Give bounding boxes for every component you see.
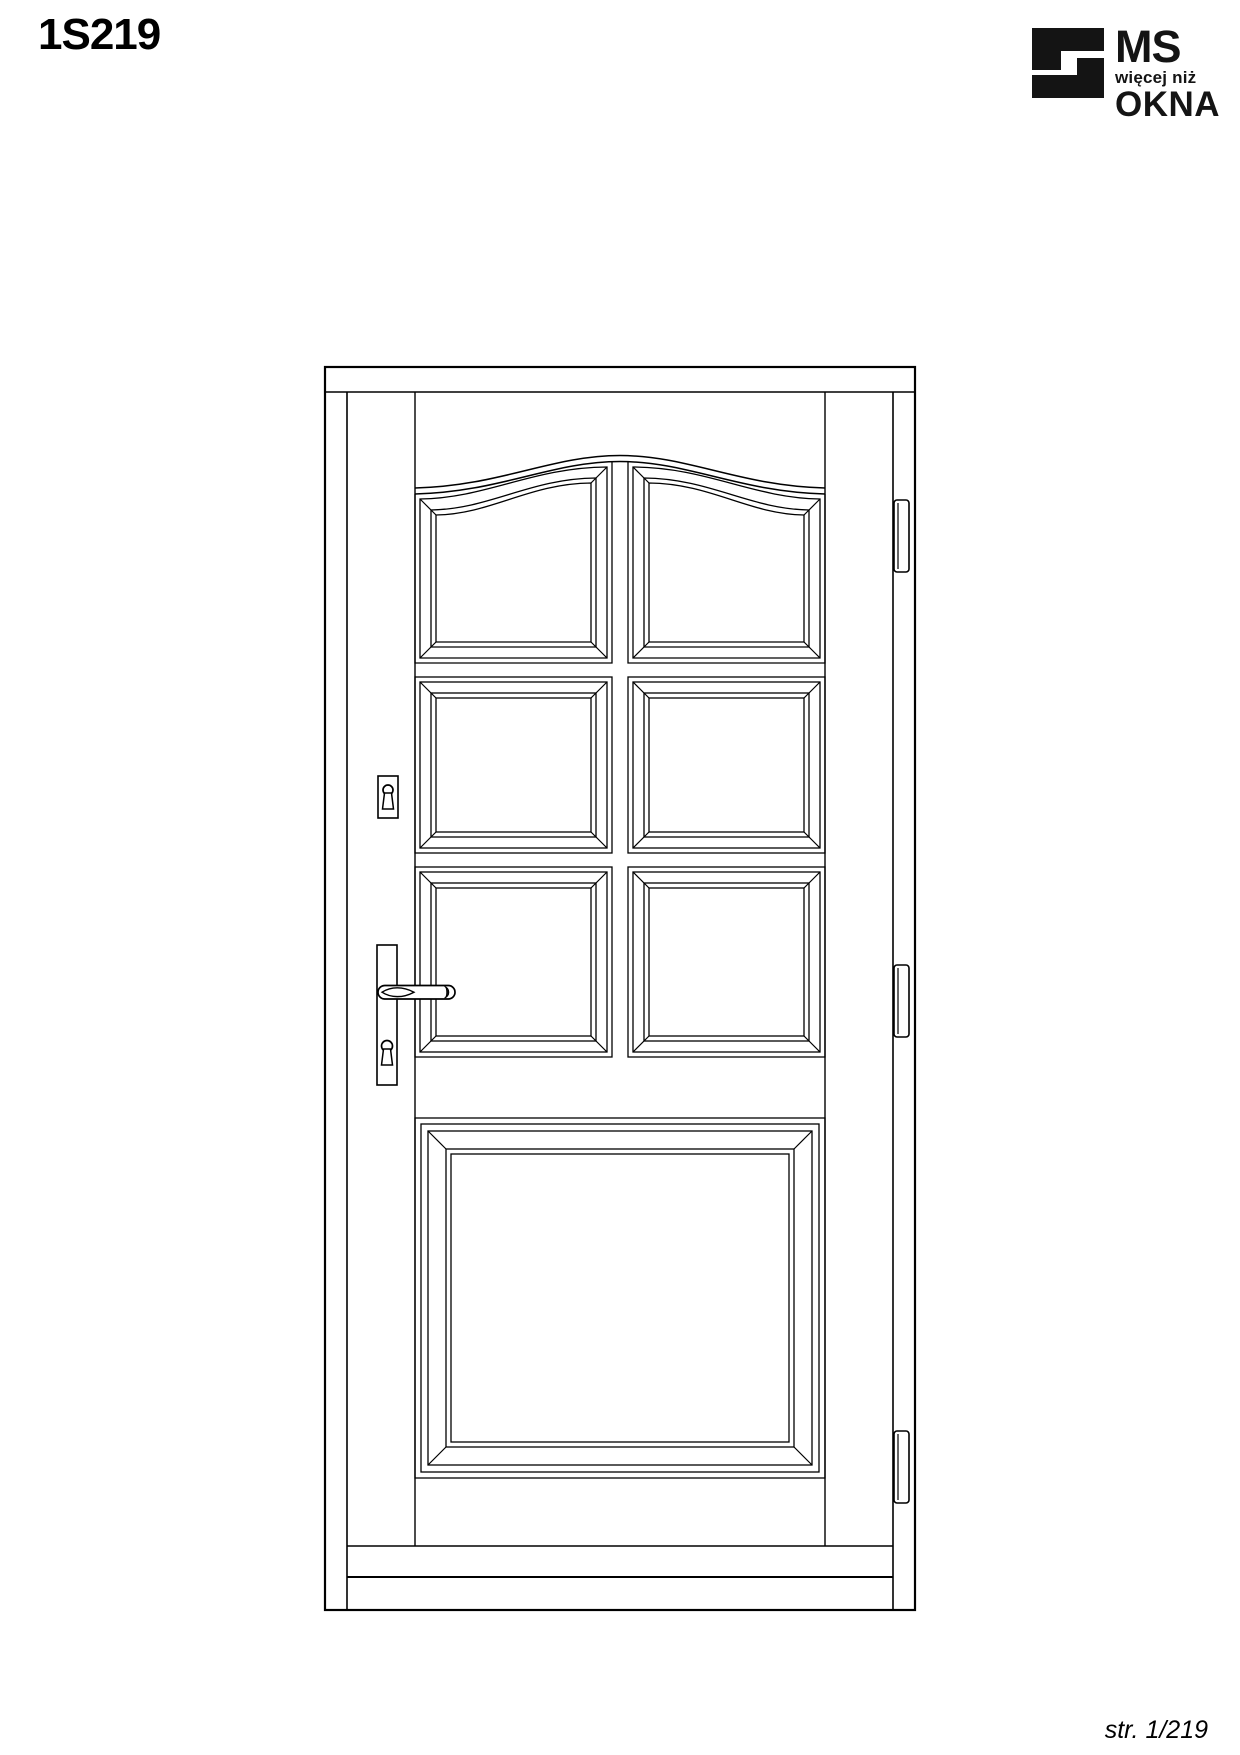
handle-lever <box>378 986 455 1000</box>
door-elevation-drawing <box>0 0 1240 1755</box>
door-leaf <box>347 392 893 1577</box>
hinge-bottom <box>894 1431 909 1503</box>
panel-row2-right <box>628 677 825 853</box>
panel-row3-left <box>415 867 612 1057</box>
hinge-middle <box>894 965 909 1037</box>
panel-row3-right <box>628 867 825 1057</box>
panel-row2-left <box>415 677 612 853</box>
keyhole-escutcheon-upper <box>378 776 398 818</box>
catalog-page: 1S219 MS więcej niż OKNA str. 1/219 <box>0 0 1240 1755</box>
footer-page-number: str. 1/219 <box>1105 1716 1208 1745</box>
arched-rail-edge <box>415 456 825 495</box>
hinge-top <box>894 500 909 572</box>
panel-bottom-large <box>415 1118 825 1478</box>
